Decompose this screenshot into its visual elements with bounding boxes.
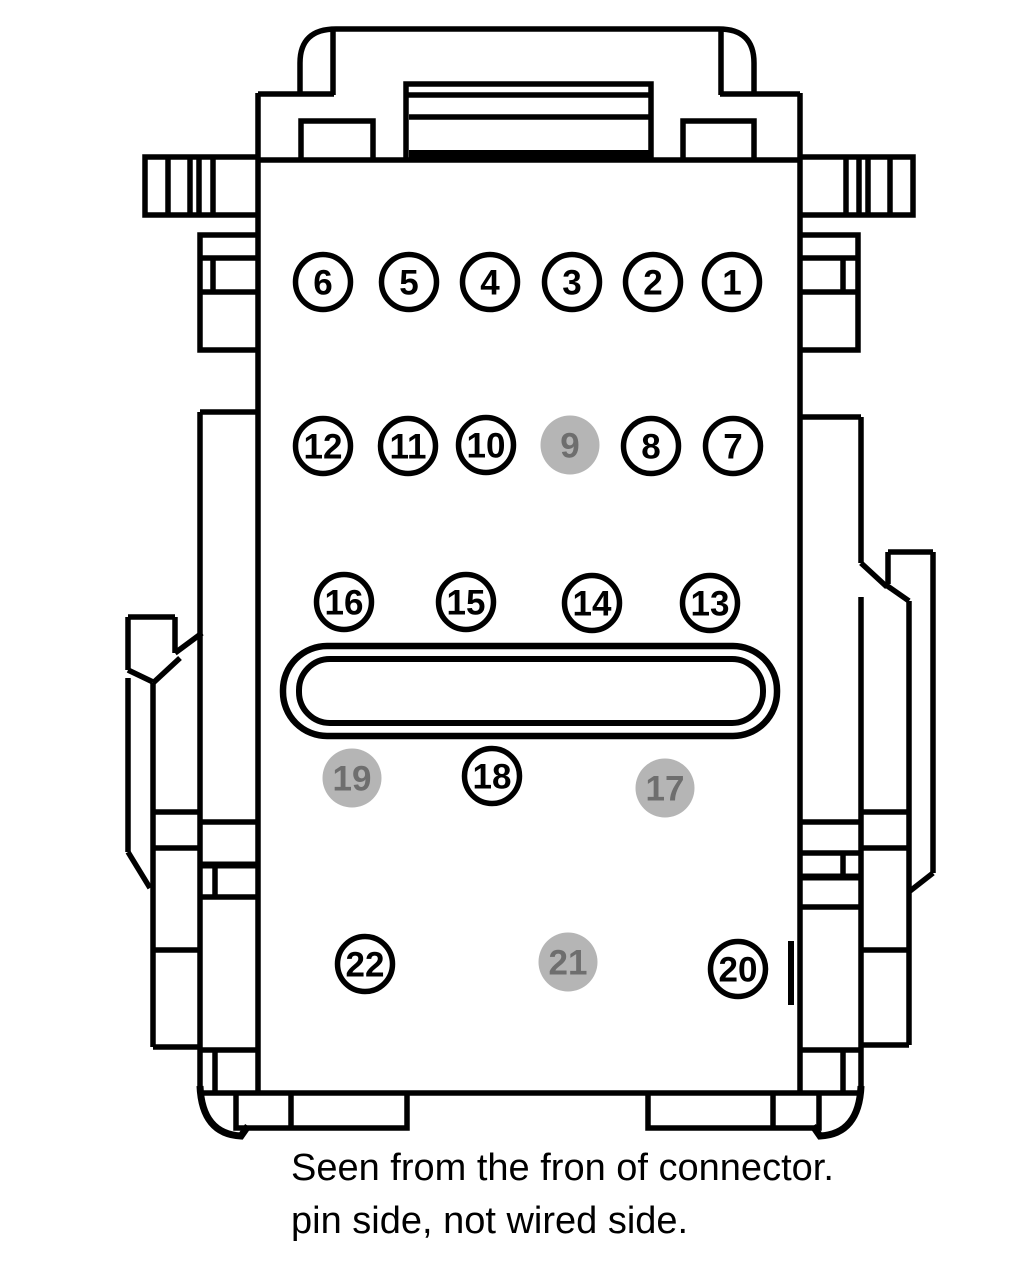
pin-8-label: 8 — [641, 428, 660, 467]
pin-17-label: 17 — [646, 770, 685, 809]
pin-7-label: 7 — [723, 428, 742, 467]
pin-6-label: 6 — [313, 264, 332, 303]
pin-1-label: 1 — [722, 264, 741, 303]
pin-22-label: 22 — [346, 946, 385, 985]
left-wing — [145, 157, 258, 215]
left-inner-column — [202, 822, 258, 1093]
pin-5-label: 5 — [399, 264, 418, 303]
body-frame — [202, 93, 860, 1093]
pin-10-label: 10 — [467, 427, 506, 466]
left-latch-arm — [128, 617, 202, 1047]
slide-tab — [406, 84, 651, 161]
pin-20-label: 20 — [719, 951, 758, 990]
left-shell — [200, 412, 258, 1136]
bottom-tabs — [236, 1093, 819, 1128]
pin-9-label: 9 — [560, 427, 579, 466]
pin-19-label: 19 — [333, 760, 372, 799]
caption-line-2: pin side, not wired side. — [291, 1200, 688, 1242]
pin-2-label: 2 — [643, 264, 662, 303]
pin-16-label: 16 — [325, 584, 364, 623]
right-shell — [800, 417, 887, 1136]
connector-pinout-diagram: 65432112111098716151413191817222120 Seen… — [0, 0, 1030, 1288]
pin-21-label: 21 — [549, 944, 588, 983]
caption-line-1: Seen from the fron of connector. — [291, 1147, 834, 1189]
pin-group: 65432112111098716151413191817222120 — [296, 255, 766, 997]
left-upper-block — [200, 235, 258, 350]
pin-12-label: 12 — [304, 428, 343, 467]
right-wing — [800, 157, 913, 215]
right-latch-arm — [862, 552, 933, 1045]
pin-14-label: 14 — [573, 585, 612, 624]
right-upper-block — [800, 235, 858, 350]
pin-4-label: 4 — [480, 264, 500, 303]
key-slot — [283, 646, 777, 736]
connector-drawing: 65432112111098716151413191817222120 Seen… — [0, 0, 1030, 1288]
pin-13-label: 13 — [691, 585, 730, 624]
pin-3-label: 3 — [562, 264, 581, 303]
pin-11-label: 11 — [390, 428, 427, 467]
pin-18-label: 18 — [473, 758, 512, 797]
pin-15-label: 15 — [447, 584, 486, 623]
right-inner-column — [800, 822, 861, 1093]
